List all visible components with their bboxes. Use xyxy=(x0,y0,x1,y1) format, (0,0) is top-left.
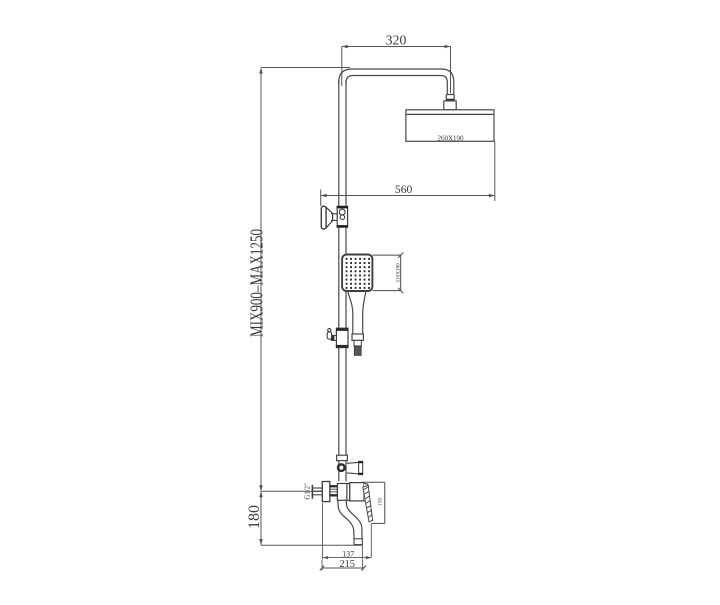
svg-text:260X190: 260X190 xyxy=(437,134,464,142)
svg-text:320: 320 xyxy=(386,33,407,48)
svg-text:MIX900–MAX1250: MIX900–MAX1250 xyxy=(247,229,267,337)
svg-text:180: 180 xyxy=(246,505,263,529)
svg-text:110X190: 110X190 xyxy=(395,263,401,283)
svg-text:G1/2″: G1/2″ xyxy=(304,483,311,500)
svg-text:137: 137 xyxy=(342,550,354,559)
svg-text:215: 215 xyxy=(339,559,354,570)
svg-text:150: 150 xyxy=(378,498,384,507)
svg-text:560: 560 xyxy=(395,183,413,196)
